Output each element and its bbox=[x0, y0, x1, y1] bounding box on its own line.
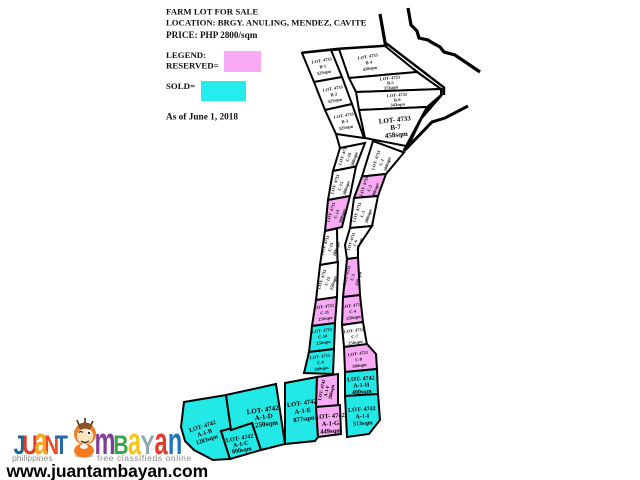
svg-text:SOLD=: SOLD= bbox=[166, 81, 195, 91]
svg-text:PRICE: PHP 2800/sqm: PRICE: PHP 2800/sqm bbox=[166, 30, 258, 40]
svg-text:As of June 1, 2018: As of June 1, 2018 bbox=[166, 113, 238, 123]
svg-text:LOCATION: BRGY. ANULING, MENDE: LOCATION: BRGY. ANULING, MENDEZ, CAVITE bbox=[166, 18, 367, 28]
svg-text:T: T bbox=[55, 431, 68, 461]
svg-text:www.juantambayan.com: www.juantambayan.com bbox=[6, 461, 209, 480]
svg-text:A-1-I: A-1-I bbox=[355, 413, 370, 420]
svg-text:LEGEND:: LEGEND: bbox=[166, 50, 206, 60]
svg-text:RESERVED=: RESERVED= bbox=[166, 61, 219, 71]
svg-text:FARM LOT FOR SALE: FARM LOT FOR SALE bbox=[166, 7, 258, 17]
